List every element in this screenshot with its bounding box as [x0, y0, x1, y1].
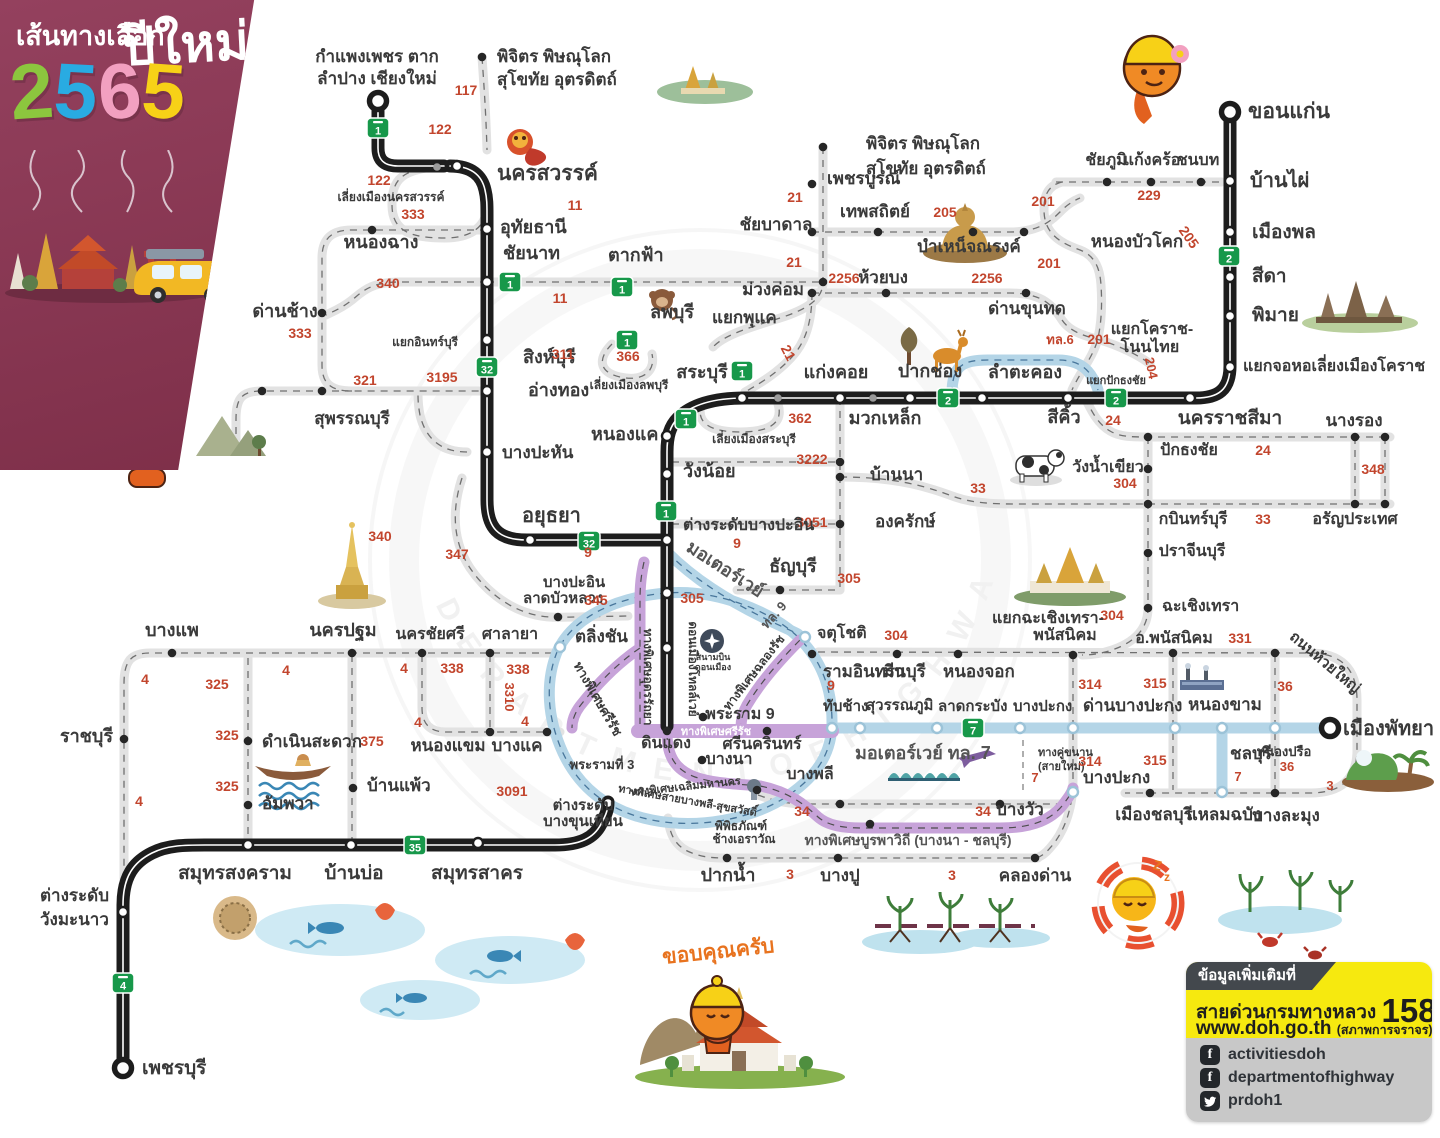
station-dot: [662, 588, 672, 598]
station-dot: [554, 613, 563, 622]
station-dot: [1103, 178, 1112, 187]
map-label: 33: [1255, 511, 1271, 527]
station-dot: [1144, 500, 1153, 509]
map-label: ทางพิเศษบูรพาวิถี (บางนา - ชลบุรี): [804, 832, 1011, 849]
station-dot: [835, 393, 845, 403]
station-dot: [1022, 289, 1031, 298]
lion-dance-icon: [507, 129, 546, 166]
map-label: บางแพ: [145, 620, 199, 640]
station-dot: [1351, 500, 1360, 509]
map-label: บางนา: [706, 751, 753, 768]
terminus-station: [115, 1060, 132, 1077]
station-dot: [348, 649, 357, 658]
info-header: ข้อมูลเพิ่มเติมที่: [1186, 962, 1336, 990]
map-label: 117: [455, 82, 478, 98]
map-label: 333: [288, 325, 312, 341]
map-label: ทล.6: [1046, 332, 1073, 347]
fish-sea-icon: [213, 896, 585, 1020]
map-label: นางรอง: [1325, 411, 1382, 430]
station-dot: [418, 649, 427, 658]
svg-text:1: 1: [619, 285, 625, 297]
station-dot: [1020, 228, 1029, 237]
station-dot: [753, 786, 762, 795]
svg-text:1: 1: [375, 126, 381, 138]
map-label: 4: [521, 713, 529, 729]
station-dot: [1351, 433, 1360, 442]
map-label: 3: [786, 866, 794, 882]
svg-text:35: 35: [409, 843, 421, 855]
map-label: ปราจีนบุรี: [1159, 541, 1226, 561]
map-label: บางขุนเทียน: [543, 813, 624, 831]
map-label: แก้งคร้อ: [1124, 151, 1181, 169]
map-label: แยกอินทร์บุรี: [392, 335, 458, 350]
station-dot: [473, 838, 483, 848]
station-dot: [1068, 723, 1078, 733]
map-label: สนามบิน: [696, 652, 731, 662]
map-label: 2256: [971, 270, 1002, 286]
highway-shield-1: 1: [367, 118, 389, 138]
map-label: พนัสนิคม: [1033, 626, 1096, 644]
map-label: ลำตะคอง: [988, 362, 1062, 382]
station-dot: [1031, 854, 1040, 863]
map-label: 9: [827, 677, 835, 693]
station-dot: [774, 394, 782, 402]
station-dot: [977, 393, 987, 403]
station-dot: [905, 393, 915, 403]
map-label: สุวรรณภูมิ: [866, 696, 933, 715]
map-label: วังน้อย: [683, 461, 736, 481]
mascot-top-right-icon: [1124, 36, 1189, 124]
map-label: อรัญประเทศ: [1312, 510, 1398, 529]
map-label: แยกฉะเชิงเทรา-: [992, 609, 1104, 627]
station-dot: [1271, 649, 1280, 658]
map-label: 24: [1105, 412, 1121, 428]
map-label: อัมพวา: [262, 794, 314, 813]
map-label: นครปฐม: [309, 620, 376, 642]
station-dot: [346, 840, 356, 850]
map-label: 3: [1326, 778, 1333, 793]
balloon-digit: 6: [96, 51, 143, 131]
map-label: ม่วงค่อม: [742, 280, 804, 299]
map-label: 314: [1078, 676, 1102, 692]
map-label: 305: [837, 570, 861, 586]
station-dot: [800, 632, 810, 642]
map-label: ตลิ่งชัน: [575, 624, 628, 646]
map-label: ปากน้ำ: [701, 861, 756, 885]
map-label: 9: [733, 535, 741, 551]
svg-text:1: 1: [683, 417, 689, 429]
station-dot: [1271, 789, 1280, 798]
map-label: ขอบคุณครับ: [661, 934, 775, 971]
map-label: อยุธยา: [522, 505, 581, 528]
map-label: บ้านบ่อ: [324, 862, 383, 884]
map-label: แก่งคอย: [804, 362, 869, 382]
map-label: พิจิตร พิษณุโลก: [866, 133, 980, 154]
map-label: 3: [948, 867, 956, 883]
factory-icon: [1180, 663, 1224, 690]
map-label: มีนบุรี: [883, 661, 927, 682]
map-label: 11: [553, 290, 568, 306]
station-dot: [763, 727, 772, 736]
station-dot: [969, 228, 978, 237]
map-label: ด่านบางปะกง: [1083, 696, 1182, 715]
map-label: อุทัยธานี: [500, 217, 567, 239]
map-label: 325: [205, 676, 229, 692]
station-dot: [662, 643, 672, 653]
balloon-digit: 5: [139, 51, 188, 132]
map-label: ดำเนินสะดวก: [262, 732, 362, 751]
social-facebook-2[interactable]: f departmentofhighway: [1200, 1068, 1432, 1088]
station-dot: [662, 431, 672, 441]
map-label: 24: [1255, 442, 1271, 458]
map-label: ธัญบุรี: [769, 556, 817, 578]
map-label: แยกพุแค: [712, 308, 777, 328]
twitter-icon: [1200, 1091, 1220, 1111]
facebook-icon: f: [1200, 1045, 1220, 1065]
social-handle: activitiesdoh: [1228, 1046, 1326, 1064]
balloon-digit: 2: [7, 51, 56, 132]
station-dot: [1069, 651, 1078, 660]
station-dot: [855, 723, 865, 733]
map-label: 315: [1143, 675, 1167, 691]
map-label: 122: [367, 172, 391, 188]
map-label: สุพรรณบุรี: [314, 408, 390, 429]
map-label: ขอนแก่น: [1248, 100, 1331, 123]
map-label: 7: [1031, 770, 1038, 785]
website-url[interactable]: www.doh.go.th: [1196, 1018, 1331, 1039]
station-dot: [482, 447, 492, 457]
highway-shield-4: 4: [112, 973, 134, 993]
station-dot: [1144, 604, 1153, 613]
station-dot: [1225, 176, 1235, 186]
station-dot: [1144, 433, 1153, 442]
station-dot: [525, 535, 535, 545]
map-label: 36: [1280, 759, 1294, 774]
station-dot: [482, 224, 492, 234]
station-dot: [1381, 433, 1390, 442]
station-dot: [1217, 723, 1227, 733]
map-label: ห้วยบง: [858, 268, 908, 287]
map-label: หนองแค: [591, 424, 658, 444]
map-label: ต่างระดับบางปะอิน: [683, 516, 814, 534]
svg-text:2: 2: [945, 396, 951, 408]
map-label: นครราชสีมา: [1178, 407, 1282, 429]
station-dot: [819, 278, 828, 287]
map-label: 331: [1228, 630, 1252, 646]
map-label: 3310: [502, 683, 517, 712]
map-label: อ.พนัสนิคม: [1135, 629, 1213, 647]
map-label: 305: [680, 590, 704, 606]
map-label: บ้านแพ้ว: [367, 776, 431, 795]
station-dot: [834, 854, 843, 863]
station-dot: [1015, 723, 1025, 733]
svg-text:7: 7: [970, 726, 976, 738]
map-label: พิพิธภัณฑ์: [715, 819, 767, 833]
highway-shield-1: 1: [655, 501, 677, 521]
map-label: กบินทร์บุรี: [1159, 509, 1228, 529]
svg-text:1: 1: [507, 280, 513, 292]
station-dot: [836, 473, 845, 482]
highway-shield-2: 2: [1218, 246, 1240, 266]
station-dot: [1063, 393, 1073, 403]
svg-text:32: 32: [481, 365, 493, 377]
map-label: ถนนห้วยใหญ่: [1286, 627, 1364, 697]
map-label: หนองขาม: [1188, 695, 1262, 714]
station-dot: [1270, 723, 1280, 733]
station-dot: [827, 723, 837, 733]
map-label: 325: [215, 727, 239, 743]
map-label: ลาดกระบัง: [938, 698, 1007, 715]
station-dot: [866, 820, 875, 829]
svg-text:4: 4: [120, 981, 127, 993]
map-label: ลำปาง เชียงใหม่: [317, 68, 437, 88]
highway-shield-1: 1: [499, 272, 521, 292]
map-label: ทางพิเศษอุดรรัถยา: [640, 629, 655, 726]
station-dot: [1146, 789, 1155, 798]
map-label: สมุทรสาคร: [431, 863, 524, 885]
mountain-icon: [196, 416, 266, 456]
map-label: 340: [376, 275, 400, 291]
map-label: แหลมฉบัง: [1187, 805, 1261, 824]
map-label: 366: [616, 348, 640, 364]
map-label: 3195: [426, 369, 457, 385]
map-label: เลี่ยงเมืองลพบุรี: [590, 376, 669, 393]
map-label: 325: [215, 778, 239, 794]
map-label: ดอนเมือง: [695, 661, 731, 672]
station-dot: [1225, 227, 1235, 237]
website-note: (สภาพการจราจร): [1337, 1023, 1432, 1037]
station-dot: [478, 53, 487, 62]
map-label: หนองบัวโคก: [1091, 231, 1183, 251]
balloon-digit: 5: [52, 51, 99, 131]
new-year-2565-route-map: D E P A R T M E N T O F H I G H W A Y S: [0, 0, 1440, 1138]
map-label: พระรามที่ 3: [570, 755, 635, 772]
highway-shield-2: 2: [1105, 388, 1127, 408]
station-dot: [318, 387, 327, 396]
map-label: บางพลี: [786, 764, 833, 783]
map-label: บางละมุง: [1252, 806, 1320, 826]
map-label: 9: [584, 544, 592, 560]
station-dot: [836, 458, 845, 467]
map-label: 4: [282, 662, 290, 678]
map-label: 229: [1137, 187, 1161, 203]
map-label: คลองด่าน: [999, 866, 1072, 885]
map-label: บ้านไผ่: [1250, 168, 1309, 192]
map-label: 2256: [828, 270, 859, 286]
map-label: ตากฟ้า: [608, 245, 664, 265]
map-label: ชัยบาดาล: [740, 215, 813, 234]
map-label: เพชรบุรี: [142, 1057, 207, 1080]
map-label: 338: [440, 660, 464, 676]
social-facebook-1[interactable]: f activitiesdoh: [1200, 1045, 1432, 1065]
map-label: นครสวรรค์: [497, 161, 598, 185]
map-label: บางปะหัน: [502, 443, 574, 462]
station-dot: [893, 650, 902, 659]
station-dot: [1197, 178, 1206, 187]
social-handle: departmentofhighway: [1228, 1069, 1394, 1087]
map-label: ปากช่อง: [898, 361, 962, 381]
map-label: 338: [506, 661, 530, 677]
map-label: หนองจอก: [943, 662, 1015, 681]
station-dot: [1185, 393, 1195, 403]
map-label: 4: [141, 671, 149, 687]
map-label: เมืองพล: [1252, 221, 1316, 243]
station-dot: [723, 854, 732, 863]
map-label: สระบุรี: [676, 362, 728, 384]
map-label: 36: [1277, 678, 1293, 694]
map-label: อ่างทอง: [528, 380, 589, 400]
donmueang-airport-icon: [700, 629, 724, 653]
station-dot: [244, 737, 253, 746]
station-dot: [819, 143, 828, 152]
map-label: 201: [1037, 255, 1061, 271]
station-dot: [1169, 649, 1178, 658]
station-dot: [486, 728, 495, 737]
map-label: ลพบุรี: [650, 302, 694, 324]
svg-text:1: 1: [663, 509, 669, 521]
terminus-station: [1222, 104, 1239, 121]
facebook-icon: f: [1200, 1068, 1220, 1088]
station-dot: [482, 386, 492, 396]
station-dot: [543, 728, 552, 737]
station-dot: [1225, 362, 1235, 372]
station-dot: [244, 801, 253, 810]
terminus-station: [370, 93, 387, 110]
year-balloons: 2 5 6 5: [10, 52, 250, 130]
map-label: 304: [884, 627, 908, 643]
station-dot: [776, 586, 785, 595]
station-dot: [737, 393, 747, 403]
station-dot: [1217, 787, 1227, 797]
map-label: บางปู: [820, 866, 860, 887]
station-dot: [555, 642, 565, 652]
map-label: หนองแขม: [410, 736, 485, 755]
grand-palace-icon: [657, 66, 753, 104]
station-dot: [452, 161, 462, 171]
highway-shield-35: 35: [404, 835, 426, 855]
station-dot: [808, 180, 817, 189]
map-label: ราชบุรี: [60, 726, 113, 748]
map-label: บางปะอิน: [543, 573, 606, 591]
map-label: ชัยภูมิ: [1085, 151, 1126, 171]
station-dot: [243, 840, 253, 850]
station-dot: [662, 469, 672, 479]
station-dot: [1068, 787, 1078, 797]
map-label: 4: [414, 714, 422, 730]
social-handle: prdoh1: [1228, 1092, 1282, 1110]
map-label: 3222: [796, 451, 827, 467]
highway-shield-32: 32: [476, 357, 498, 377]
map-label: 21: [786, 254, 802, 270]
svg-text:2: 2: [1113, 396, 1119, 408]
station-dot: [932, 723, 942, 733]
map-label: กำแพงเพชร ตาก: [315, 47, 439, 66]
social-twitter[interactable]: prdoh1: [1200, 1091, 1432, 1111]
map-label: 3091: [496, 783, 527, 799]
map-label: 315: [1143, 752, 1167, 768]
mangrove-crabs-icon: [1218, 870, 1352, 960]
map-label: 122: [428, 121, 452, 137]
map-label: 345: [584, 592, 608, 608]
map-label: วังมะนาว: [40, 910, 109, 929]
map-label: เลี่ยงเมืองสระบุรี: [712, 430, 796, 447]
map-label: ด่านขุนทด: [988, 299, 1066, 319]
map-label: 314: [1078, 753, 1102, 769]
station-dot: [808, 289, 817, 298]
map-label: แยกโคราช-: [1111, 318, 1193, 338]
station-dot: [836, 800, 845, 809]
map-label: 205: [933, 204, 957, 220]
map-label: 347: [445, 546, 469, 562]
highway-shield-1: 1: [675, 409, 697, 429]
map-label: 201: [1087, 331, 1111, 347]
station-dot: [482, 335, 492, 345]
station-dot: [1144, 549, 1153, 558]
station-dot: [663, 727, 672, 736]
station-dot: [1170, 723, 1180, 733]
map-label: ศาลายา: [482, 626, 538, 643]
map-label: เทพสถิตย์: [840, 201, 910, 221]
map-label: ทับช้าง: [823, 698, 868, 715]
map-label: 348: [1361, 461, 1385, 477]
map-label: องครักษ์: [875, 511, 936, 531]
map-label: บางวัว: [996, 800, 1044, 819]
map-label: โนนไทย: [1120, 336, 1179, 356]
highway-shield-1: 1: [616, 330, 638, 350]
station-dot: [808, 650, 817, 659]
station-dot: [118, 907, 128, 917]
map-label: หนองปรือ: [1257, 744, 1312, 759]
map-label: ปักธงชัย: [1160, 441, 1218, 459]
map-label: สีดา: [1252, 265, 1287, 287]
svg-text:1: 1: [739, 369, 745, 381]
map-label: แยกจอหอเลี่ยงเมืองโคราช: [1243, 354, 1425, 375]
map-label: เลี่ยงเมืองนครสวรรค์: [337, 188, 444, 204]
station-dot: [662, 535, 672, 545]
map-label: เพชรบูรณ์: [827, 168, 901, 190]
map-label: 340: [368, 528, 392, 544]
map-label: พระราม 9: [705, 706, 774, 723]
map-label: 11: [568, 197, 583, 213]
map-label: บางปะกง: [1013, 698, 1072, 715]
map-label: 4: [400, 660, 408, 676]
info-box-social-panel: f activitiesdoh f departmentofhighway pr…: [1186, 1038, 1432, 1122]
station-dot: [482, 277, 492, 287]
map-label: วังน้ำเขียว: [1072, 454, 1144, 476]
map-label: 375: [360, 733, 384, 749]
map-label: บางปะกง: [1083, 768, 1150, 787]
map-label: 201: [1031, 193, 1055, 209]
station-dot: [882, 289, 891, 298]
map-label: บางแค: [492, 736, 543, 755]
station-dot: [318, 309, 327, 318]
map-label: เมืองชลบุรี: [1115, 804, 1193, 825]
map-label: ต่างระดับ: [553, 797, 614, 814]
info-box: สายด่วนกรมทางหลวง 1586 www.doh.go.th (สภ…: [1186, 962, 1432, 1122]
map-label: 333: [401, 206, 425, 222]
map-label: แยกปักธงชัย: [1086, 374, 1146, 387]
station-dot: [486, 649, 495, 658]
map-label: ช้างเอราวัณ: [712, 832, 775, 846]
station-dot: [349, 784, 358, 793]
map-label: เมืองพัทยา: [1343, 717, 1434, 740]
station-dot: [1381, 500, 1390, 509]
map-label: พิจิตร พิษณุโลก: [497, 46, 611, 67]
station-dot: [954, 650, 963, 659]
map-label: สุโขทัย อุตรดิตถ์: [497, 69, 617, 90]
map-label: 7: [1234, 769, 1241, 784]
website: www.doh.go.th (สภาพการจราจร): [1196, 1018, 1432, 1040]
